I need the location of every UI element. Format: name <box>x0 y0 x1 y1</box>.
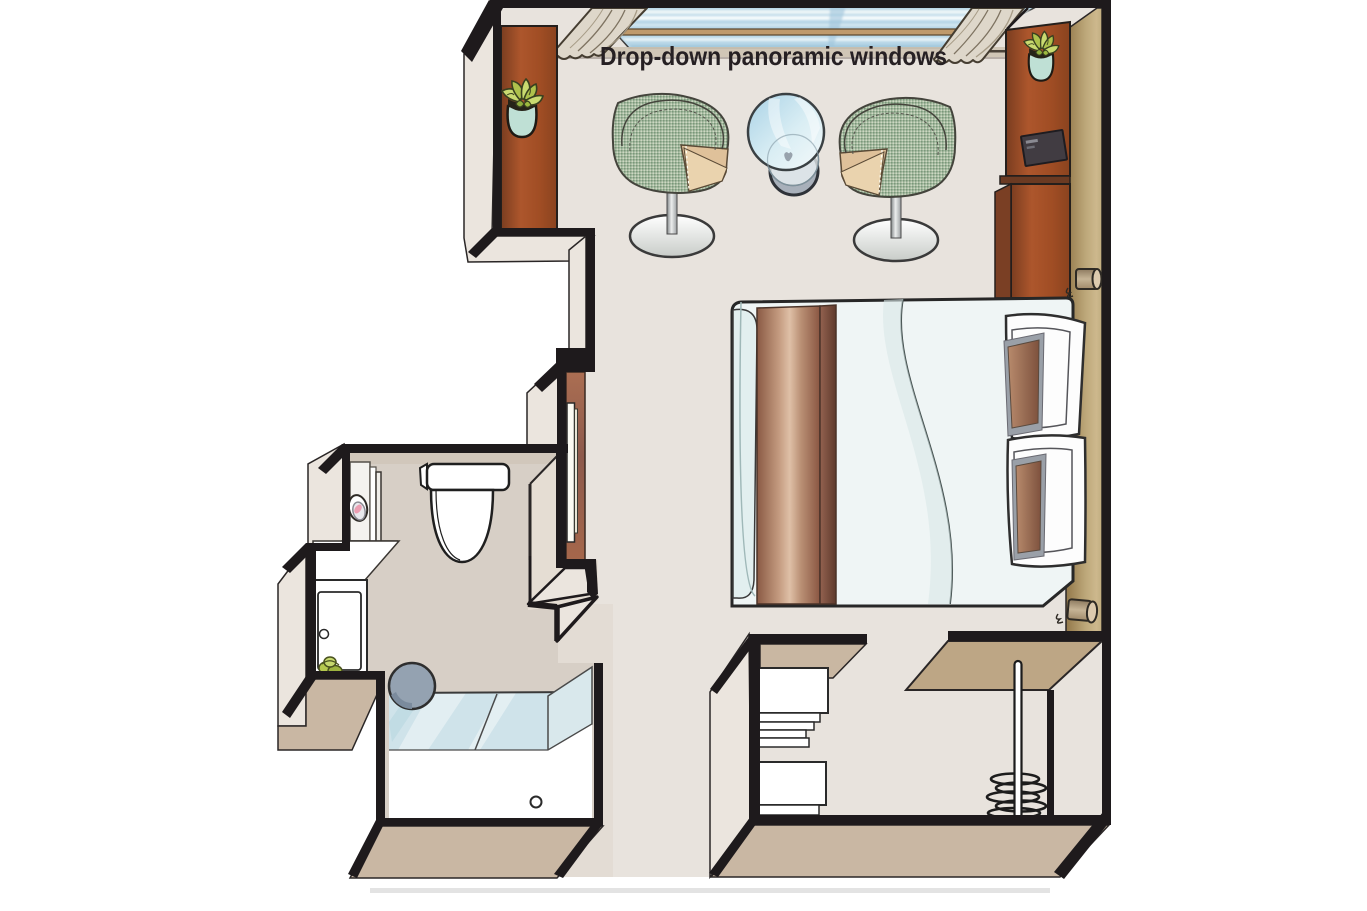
svg-text:Drop-down panoramic windows: Drop-down panoramic windows <box>600 41 947 71</box>
